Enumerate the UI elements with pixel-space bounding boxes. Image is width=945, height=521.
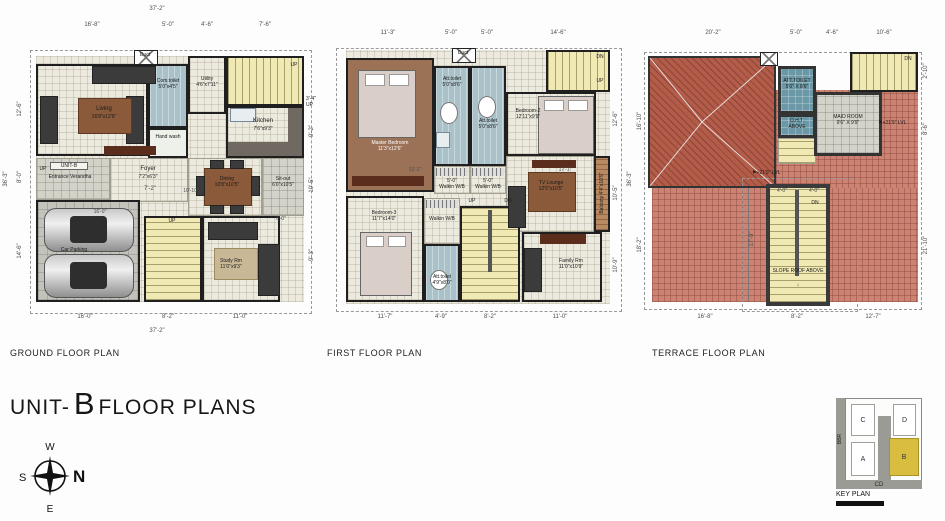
label-att-toilet-1: Att.toilet5'0"x8'6" — [435, 76, 469, 89]
toilet-wc — [478, 96, 496, 118]
sofa — [40, 96, 58, 144]
title-prefix: UNIT- — [10, 396, 70, 420]
dim-label: 5'-0" — [467, 30, 507, 36]
key-unit-b-highlighted: B — [889, 438, 919, 476]
dim-label: 10'-6" — [854, 30, 914, 36]
dim-label: 20'-2" — [683, 30, 743, 36]
label-duct: Duct — [452, 50, 474, 56]
label-family: Family Rm11'0"x10'9" — [546, 258, 596, 271]
dim-label: 21'-10" — [923, 215, 929, 275]
label-dining: Dining10'8"x10'5" — [205, 176, 249, 189]
bed — [538, 96, 594, 154]
sofa — [92, 66, 156, 84]
dim-label: 17'-1" — [545, 167, 585, 173]
dim-label: 4'-0" — [768, 188, 796, 194]
chair — [230, 160, 244, 169]
wardrobe — [426, 200, 458, 208]
key-plan-label: KEY PLAN — [836, 491, 870, 498]
dim-label: 17'-9" — [749, 209, 755, 269]
dim-label: 2'-10" — [923, 41, 929, 101]
dim-label: 8'-2" — [767, 314, 827, 320]
key-unit-c: C — [851, 404, 875, 436]
dim-label: 4'-9" — [421, 314, 461, 320]
dim-label: 4'-0" — [800, 188, 828, 194]
dim-right-overall: 36'-3" — [627, 149, 633, 209]
down-arrow: ↓ — [792, 282, 804, 288]
dim-label: 16'-0" — [80, 209, 120, 215]
label-walkin-1: 5'-0"Walkin W/B — [434, 178, 470, 191]
dim-label: 11'-0" — [530, 314, 590, 320]
kitchen-counter — [228, 142, 302, 156]
label-study: Study Rm11'0"x9'3" — [204, 258, 258, 271]
title-unit: B — [74, 386, 95, 422]
car-cabin — [70, 262, 107, 290]
ground-floor-plan-title: GROUND FLOOR PLAN — [10, 348, 120, 358]
label-walkin-3: Walkin W/B — [424, 216, 460, 222]
dim-label: 16'-8" — [62, 22, 122, 28]
tv-cabinet — [104, 146, 156, 155]
roof-ridge-lines — [650, 58, 774, 186]
dim-label: 4'-6" — [187, 22, 227, 28]
dim-label: 8'-2" — [138, 314, 198, 320]
dim-label: 16'-0" — [55, 314, 115, 320]
label-walkin-2: 5'-0"Walkin W/B — [470, 178, 506, 191]
first-floor-plan-title: FIRST FLOOR PLAN — [327, 348, 422, 358]
dim-bottom-overall: 37'-2" — [97, 328, 217, 334]
label-living: Living16'8"x12'6" — [78, 106, 130, 120]
label-stairs-dn: DN — [592, 54, 608, 60]
dim-label: 11'-3" — [358, 30, 418, 36]
label-stairs-up: UP — [592, 78, 608, 84]
car — [44, 254, 134, 298]
dim-label: 16'-8" — [675, 314, 735, 320]
compass-rose: W N S E — [10, 436, 90, 520]
dim-label: 10'-10" — [176, 188, 206, 194]
chair — [210, 160, 224, 169]
label-slope-roof-note: SLOPE ROOF ABOVE — [768, 268, 828, 274]
label-stairs-mid-up: UP — [462, 198, 482, 204]
label-verandha: Entrance Verandha — [44, 174, 96, 180]
road-cd: CD — [836, 480, 922, 489]
dim-label: 16'-10" — [637, 91, 643, 151]
cabinet — [540, 234, 586, 244]
dim-label: 9'-3" — [309, 225, 315, 285]
label-att-toilet-2: Att.toilet5'0"x8'6" — [471, 118, 505, 131]
bed — [358, 70, 416, 138]
dim-label: 12'-6" — [17, 79, 23, 139]
label-bedroom-2: Bedroom-212'11"x9'9" — [508, 108, 548, 121]
dim-label: 8'-6" — [923, 99, 929, 159]
label-utility: Utility4'6"x7'11" — [189, 76, 225, 89]
sheet-title: UNIT- B FLOOR PLANS — [10, 386, 257, 422]
pillow — [366, 236, 384, 247]
level-marker: ⚑+21'9" LVL — [752, 170, 796, 178]
dim-label: 6'-0" — [266, 216, 296, 222]
road-bbr: BBR — [836, 398, 845, 480]
study-couch — [258, 244, 280, 296]
bed — [360, 232, 412, 296]
dim-label: 5'-0" — [148, 22, 188, 28]
compass-north: N — [73, 467, 85, 486]
label-verandha-up: UP — [37, 166, 49, 172]
label-balcony: Balcony 4'4"x10'5" — [599, 163, 605, 223]
compass-star — [30, 456, 70, 496]
dim-label: 14'-6" — [528, 30, 588, 36]
chair — [210, 205, 224, 214]
compass-south: S — [19, 472, 26, 484]
label-stairs-mid-dn: DN — [498, 198, 518, 204]
label-tv-lounge: TV Lounge12'5"x10'5" — [529, 180, 573, 193]
car-cabin — [70, 216, 107, 244]
dim-label: 10'-5" — [309, 155, 315, 215]
label-foyer: Foyer7'2"x6'3" — [118, 166, 178, 180]
pillow — [568, 100, 588, 111]
label-kitchen: Kitchen7'6"x9'3" — [240, 118, 286, 132]
staircase-2 — [144, 216, 202, 302]
pillow — [365, 74, 385, 86]
dim-label: 7'-2" — [130, 186, 170, 192]
dim-label: 10'-5" — [613, 163, 619, 223]
wardrobe — [436, 168, 468, 176]
label-stairs-dn: DN — [900, 56, 916, 62]
dim-label: 14'-6" — [17, 221, 23, 281]
label-car-parking: Car Parking — [48, 247, 100, 253]
label-duct: Duct — [134, 52, 156, 58]
key-plan-scale-bar — [836, 501, 884, 506]
dim-label: 5'-0" — [776, 30, 816, 36]
dim-label: 11'-0" — [210, 314, 270, 320]
dim-label: 8'-2" — [460, 314, 520, 320]
label-hand-wash: Hand wash — [149, 134, 187, 140]
dim-label: 4'-6" — [812, 30, 852, 36]
pillow — [389, 74, 409, 86]
dim-label: 5'-0" — [431, 30, 471, 36]
dim-label: 10'-9" — [613, 235, 619, 295]
stair-divider — [488, 210, 492, 272]
wash-basin — [436, 132, 450, 148]
pillow — [388, 236, 406, 247]
label-sitout: Sit-out6'0"x10'5" — [264, 176, 302, 189]
key-unit-d: D — [893, 404, 916, 436]
dim-label: 9'-2" — [309, 101, 315, 161]
key-unit-a: A — [851, 442, 875, 476]
dim-label: 11'-7" — [355, 314, 415, 320]
kitchen-counter — [288, 108, 302, 144]
dim-label: 12'-6" — [613, 89, 619, 149]
dim-label: 18'-2" — [637, 215, 643, 275]
wardrobe — [472, 168, 504, 176]
compass-east: E — [47, 504, 54, 515]
terrace-floor-plan-title: TERRACE FLOOR PLAN — [652, 348, 765, 358]
chair — [230, 205, 244, 214]
room-foyer — [110, 158, 188, 202]
sloped-roof — [648, 56, 776, 188]
label-master-bedroom: Master Bedroom11'3"x12'6" — [352, 140, 428, 153]
dim-label: 12'-7" — [843, 314, 903, 320]
drawing-sheet: Living16'8"x12'6" Com.toilet5'0"x4'5" Ha… — [0, 0, 945, 521]
label-att-toilet: ATT.TOILET5'0" X 8'6" — [779, 78, 815, 91]
label-stairs2-up: UP — [162, 218, 182, 224]
vent-box — [760, 52, 778, 66]
dim-top-overall: 37'-2" — [97, 6, 217, 12]
label-unit-b: UNIT-B — [50, 162, 88, 170]
title-suffix: FLOOR PLANS — [99, 396, 257, 420]
label-com-toilet: Com.toilet5'0"x4'5" — [149, 78, 187, 91]
sofa — [524, 248, 542, 292]
dresser — [352, 176, 424, 186]
label-stair-dn: DN — [804, 200, 826, 206]
label-bedroom-3: Bedroom-311'7"x14'0" — [352, 210, 416, 223]
study-sofa — [208, 222, 258, 240]
chair — [251, 176, 260, 196]
sofa — [508, 186, 526, 228]
dim-label: 13'-2" — [395, 167, 435, 173]
dim-label: 8'-0" — [17, 147, 23, 207]
dim-label: 7'-6" — [235, 22, 295, 28]
compass-west: W — [45, 442, 55, 453]
label-maid-room: MAID ROOM9'6" X 9'9" — [820, 114, 876, 127]
label-att-toilet-3: Att.toilet4'9"x8'0" — [425, 274, 459, 287]
toilet-wc — [440, 102, 458, 124]
dim-left-overall: 36'-3" — [3, 149, 9, 209]
stair-divider — [795, 190, 799, 276]
label-stairs-up: UP — [286, 62, 302, 68]
level-marker: ⚑+21'9" LVL — [878, 120, 922, 128]
label-oht: O.H.T.ABOVE — [779, 118, 815, 131]
stair-flight — [778, 138, 816, 164]
